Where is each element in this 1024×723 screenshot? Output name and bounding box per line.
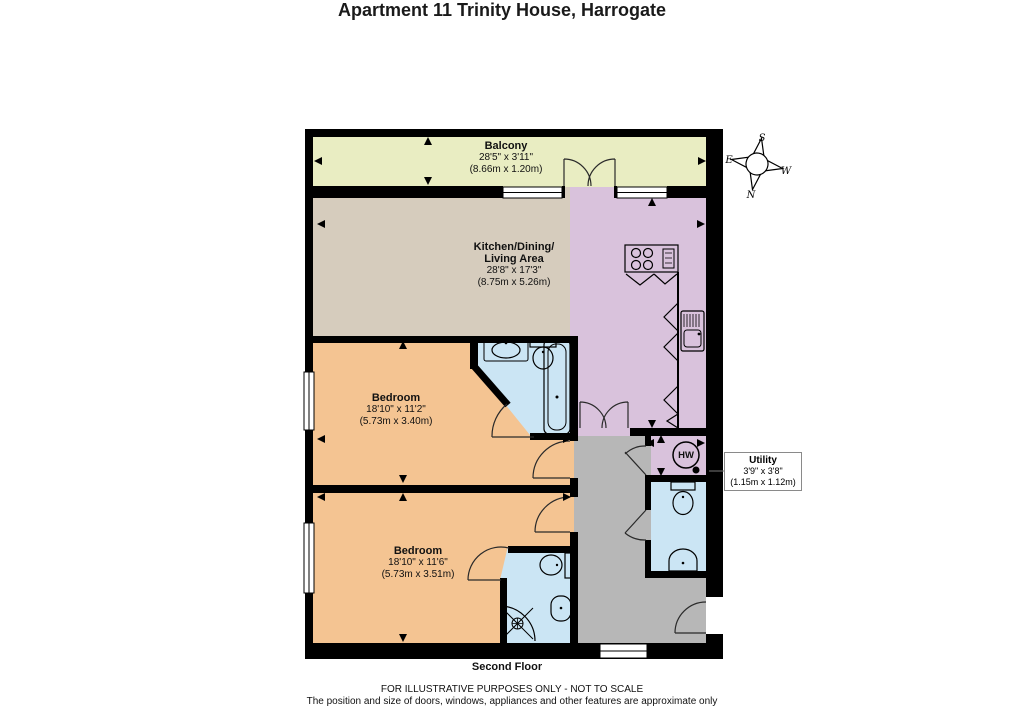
wall-bedroom1-bedroom2 (305, 485, 578, 493)
balcony-size-imperial: 28'5" x 3'11" (436, 152, 576, 164)
bedroom1-size-metric: (5.73m x 3.40m) (326, 416, 466, 428)
toilet-detail (556, 564, 558, 566)
wall-outer-top (305, 129, 723, 137)
balcony-label: Balcony 28'5" x 3'11" (8.66m x 1.20m) (436, 140, 576, 176)
bedroom2-size-metric: (5.73m x 3.51m) (348, 569, 488, 581)
wall-center-top (570, 336, 578, 441)
compass-hub (744, 151, 769, 176)
bathtub-drain (556, 396, 559, 399)
compass-west-label: W (781, 166, 792, 177)
disclaimer-line1: FOR ILLUSTRATIVE PURPOSES ONLY - NOT TO … (0, 684, 1024, 695)
compass-east-label: E (724, 155, 733, 166)
wall-outer-bottom (305, 643, 723, 659)
bedroom2-size-imperial: 18'10" x 11'6" (348, 557, 488, 569)
bedroom1-label: Bedroom 18'10" x 11'2" (5.73m x 3.40m) (326, 392, 466, 428)
wall-balcony-left (305, 186, 503, 198)
wall-balcony-right (667, 186, 723, 198)
floor-label: Second Floor (407, 661, 607, 673)
balcony-name: Balcony (436, 140, 576, 152)
wall-center-mid (570, 478, 578, 497)
wall-utility-wc (645, 475, 709, 482)
balcony-size-metric: (8.66m x 1.20m) (436, 164, 576, 176)
toilet-detail (682, 496, 684, 498)
floorplan-page: Apartment 11 Trinity House, Harrogate (0, 0, 1024, 723)
bedroom1-size-imperial: 18'10" x 11'2" (326, 404, 466, 416)
basin-tap (505, 342, 508, 345)
utility-size-imperial: 3'9" x 3'8" (726, 466, 800, 477)
bedroom2-name: Bedroom (348, 545, 488, 557)
utility-name: Utility (726, 455, 800, 466)
disclaimer-line2: The position and size of doors, windows,… (0, 696, 1024, 707)
basin-tap (682, 562, 685, 565)
kitchen-name-line2: Living Area (444, 253, 584, 265)
floorplan-drawing: S E W N (0, 0, 1024, 723)
kitchen-size-imperial: 28'8" x 17'3" (444, 265, 584, 277)
bedroom2-label: Bedroom 18'10" x 11'6" (5.73m x 3.51m) (348, 545, 488, 581)
bedroom1-name: Bedroom (326, 392, 466, 404)
basin-tap (560, 607, 563, 610)
entrance-door-opening (706, 597, 723, 634)
kitchen-size-metric: (8.75m x 5.26m) (444, 277, 584, 289)
utility-size-metric: (1.15m x 1.12m) (726, 477, 800, 488)
compass-north-label: N (746, 190, 757, 201)
utility-callout: Utility 3'9" x 3'8" (1.15m x 1.12m) (724, 452, 802, 491)
kitchen-label: Kitchen/Dining/ Living Area 28'8" x 17'3… (444, 241, 584, 289)
compass-south-label: S (759, 133, 766, 144)
compass-rose: S E W N (724, 133, 792, 201)
kitchen-name-line1: Kitchen/Dining/ (444, 241, 584, 253)
utility-dot (693, 467, 700, 474)
hot-water-label: HW (672, 450, 700, 461)
wall-wc-bottom (645, 571, 709, 578)
sink-tap (698, 333, 701, 336)
wall-kitchen-hall (630, 428, 723, 436)
wall-outer-right (706, 129, 723, 659)
wall-ensuite-top (508, 546, 578, 553)
wc-floor (651, 478, 709, 578)
